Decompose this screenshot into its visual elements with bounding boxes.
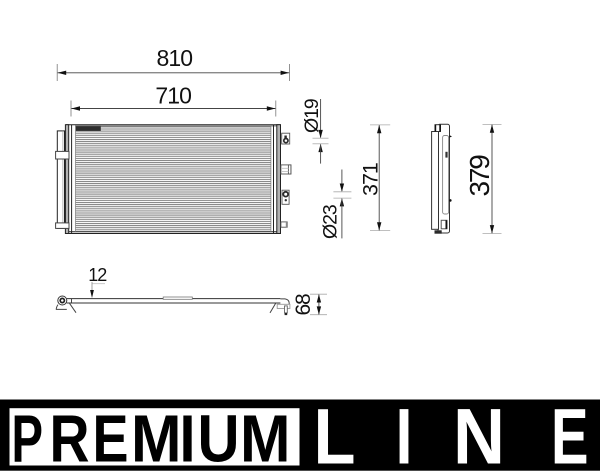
svg-text:R: R (50, 403, 90, 472)
svg-text:L: L (314, 393, 356, 472)
svg-text:Ø23: Ø23 (320, 205, 342, 239)
svg-text:E: E (93, 403, 129, 472)
svg-text:N: N (453, 393, 505, 472)
svg-text:810: 810 (156, 45, 192, 71)
svg-text:E: E (551, 393, 589, 472)
svg-text:M: M (240, 403, 291, 472)
svg-text:12: 12 (88, 265, 107, 285)
svg-text:68: 68 (292, 294, 315, 315)
svg-text:I: I (396, 393, 413, 472)
svg-text:I: I (180, 403, 196, 472)
svg-text:Ø19: Ø19 (301, 99, 323, 133)
svg-text:710: 710 (155, 83, 191, 109)
svg-text:P: P (12, 403, 44, 472)
svg-text:379: 379 (464, 155, 495, 197)
svg-text:M: M (131, 403, 182, 472)
svg-text:U: U (198, 403, 240, 472)
svg-text:371: 371 (359, 163, 383, 196)
